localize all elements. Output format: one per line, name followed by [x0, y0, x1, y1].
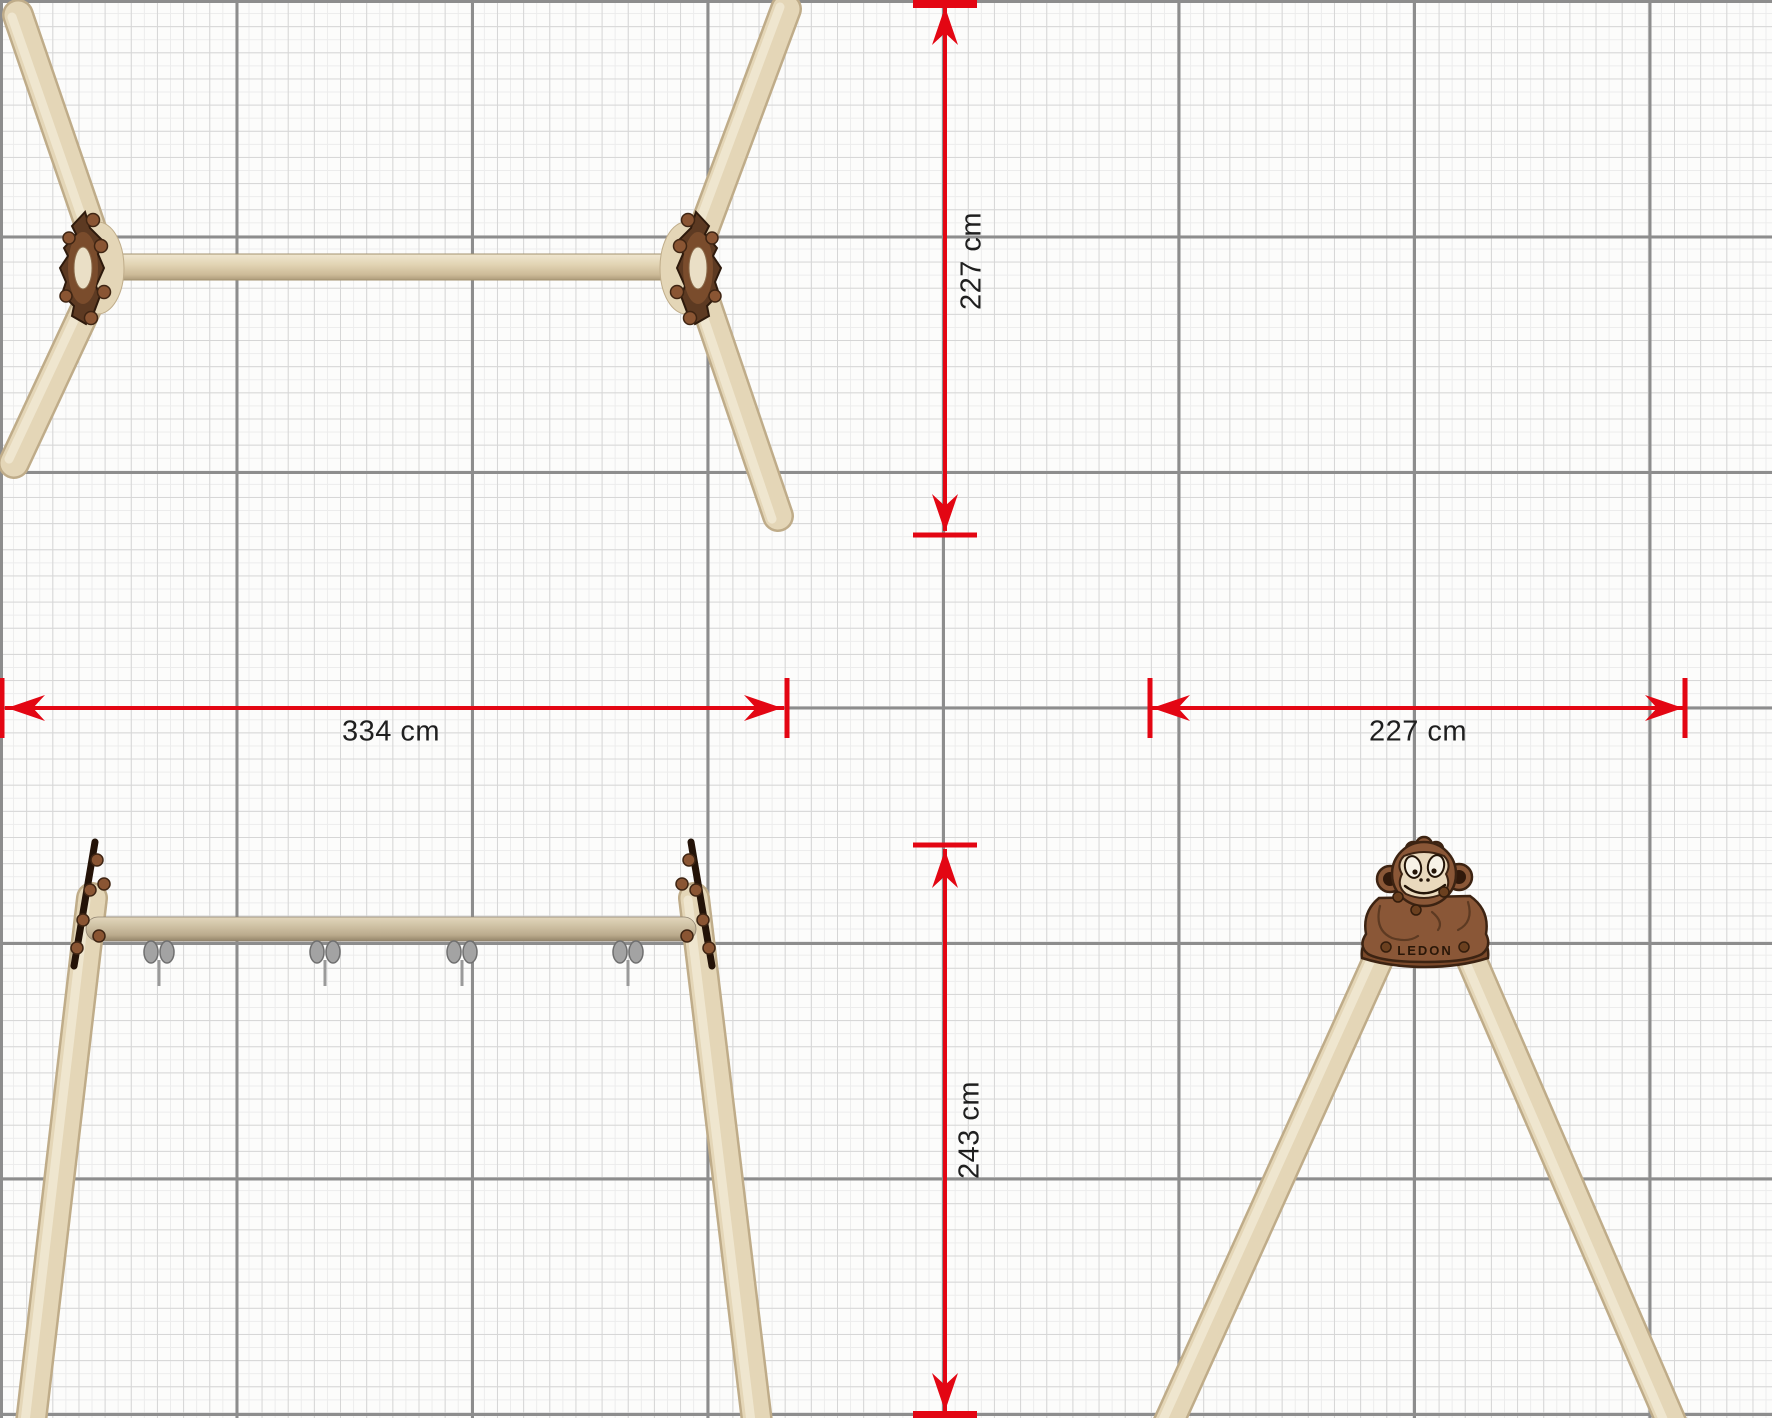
top-view-beam	[90, 254, 694, 280]
dimension-label-side-width: 227 cm	[1369, 716, 1467, 749]
front-view-right-post	[688, 898, 757, 1418]
swing-hanger	[447, 941, 477, 986]
swing-frame-drawing: LEDON	[0, 0, 1772, 1418]
side-view-right-leg	[1458, 942, 1672, 1418]
dimension-label-top-depth: 227 cm	[956, 212, 989, 310]
front-view	[25, 842, 757, 1418]
brand-text: LEDON	[1397, 943, 1453, 958]
dimension-label-side-height: 243 cm	[954, 1081, 987, 1179]
front-view-left-post	[25, 898, 92, 1418]
swing-hanger	[144, 941, 174, 986]
top-view-leg	[9, 297, 90, 463]
dimension-label-front-width: 334 cm	[342, 716, 440, 749]
top-view-leg	[698, 298, 778, 519]
side-view-left-leg	[1162, 940, 1386, 1418]
swing-hanger	[310, 941, 340, 986]
top-view-leg	[694, 7, 786, 240]
swing-hanger	[613, 941, 643, 986]
top-view	[9, 7, 786, 519]
monkey-logo: LEDON	[1362, 837, 1489, 967]
top-view-leg	[12, 15, 95, 240]
side-view: LEDON	[1162, 837, 1672, 1418]
front-view-beam	[86, 917, 696, 941]
technical-drawing: LEDON	[0, 0, 1772, 1418]
